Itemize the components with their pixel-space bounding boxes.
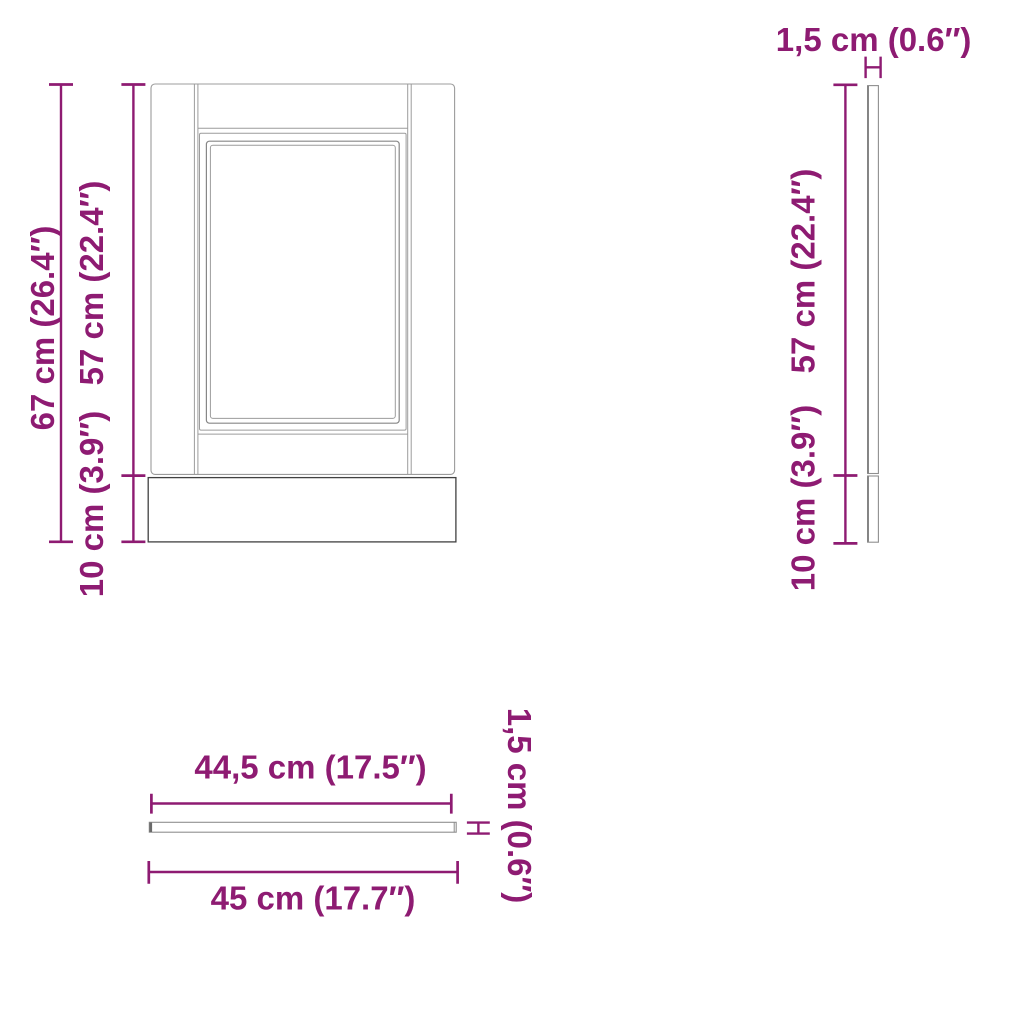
svg-text:44,5 cm (17.5″): 44,5 cm (17.5″) <box>194 749 426 786</box>
svg-text:67 cm (26.4″): 67 cm (26.4″) <box>24 226 61 431</box>
svg-text:57 cm (22.4″): 57 cm (22.4″) <box>785 169 822 374</box>
svg-text:10 cm (3.9″): 10 cm (3.9″) <box>785 405 822 591</box>
svg-text:57 cm (22.4″): 57 cm (22.4″) <box>73 181 110 386</box>
svg-text:45 cm (17.7″): 45 cm (17.7″) <box>211 879 416 916</box>
svg-text:1,5 cm (0.6″): 1,5 cm (0.6″) <box>776 21 972 58</box>
svg-text:10 cm (3.9″): 10 cm (3.9″) <box>73 411 110 597</box>
svg-text:1,5 cm (0.6″): 1,5 cm (0.6″) <box>501 708 538 904</box>
